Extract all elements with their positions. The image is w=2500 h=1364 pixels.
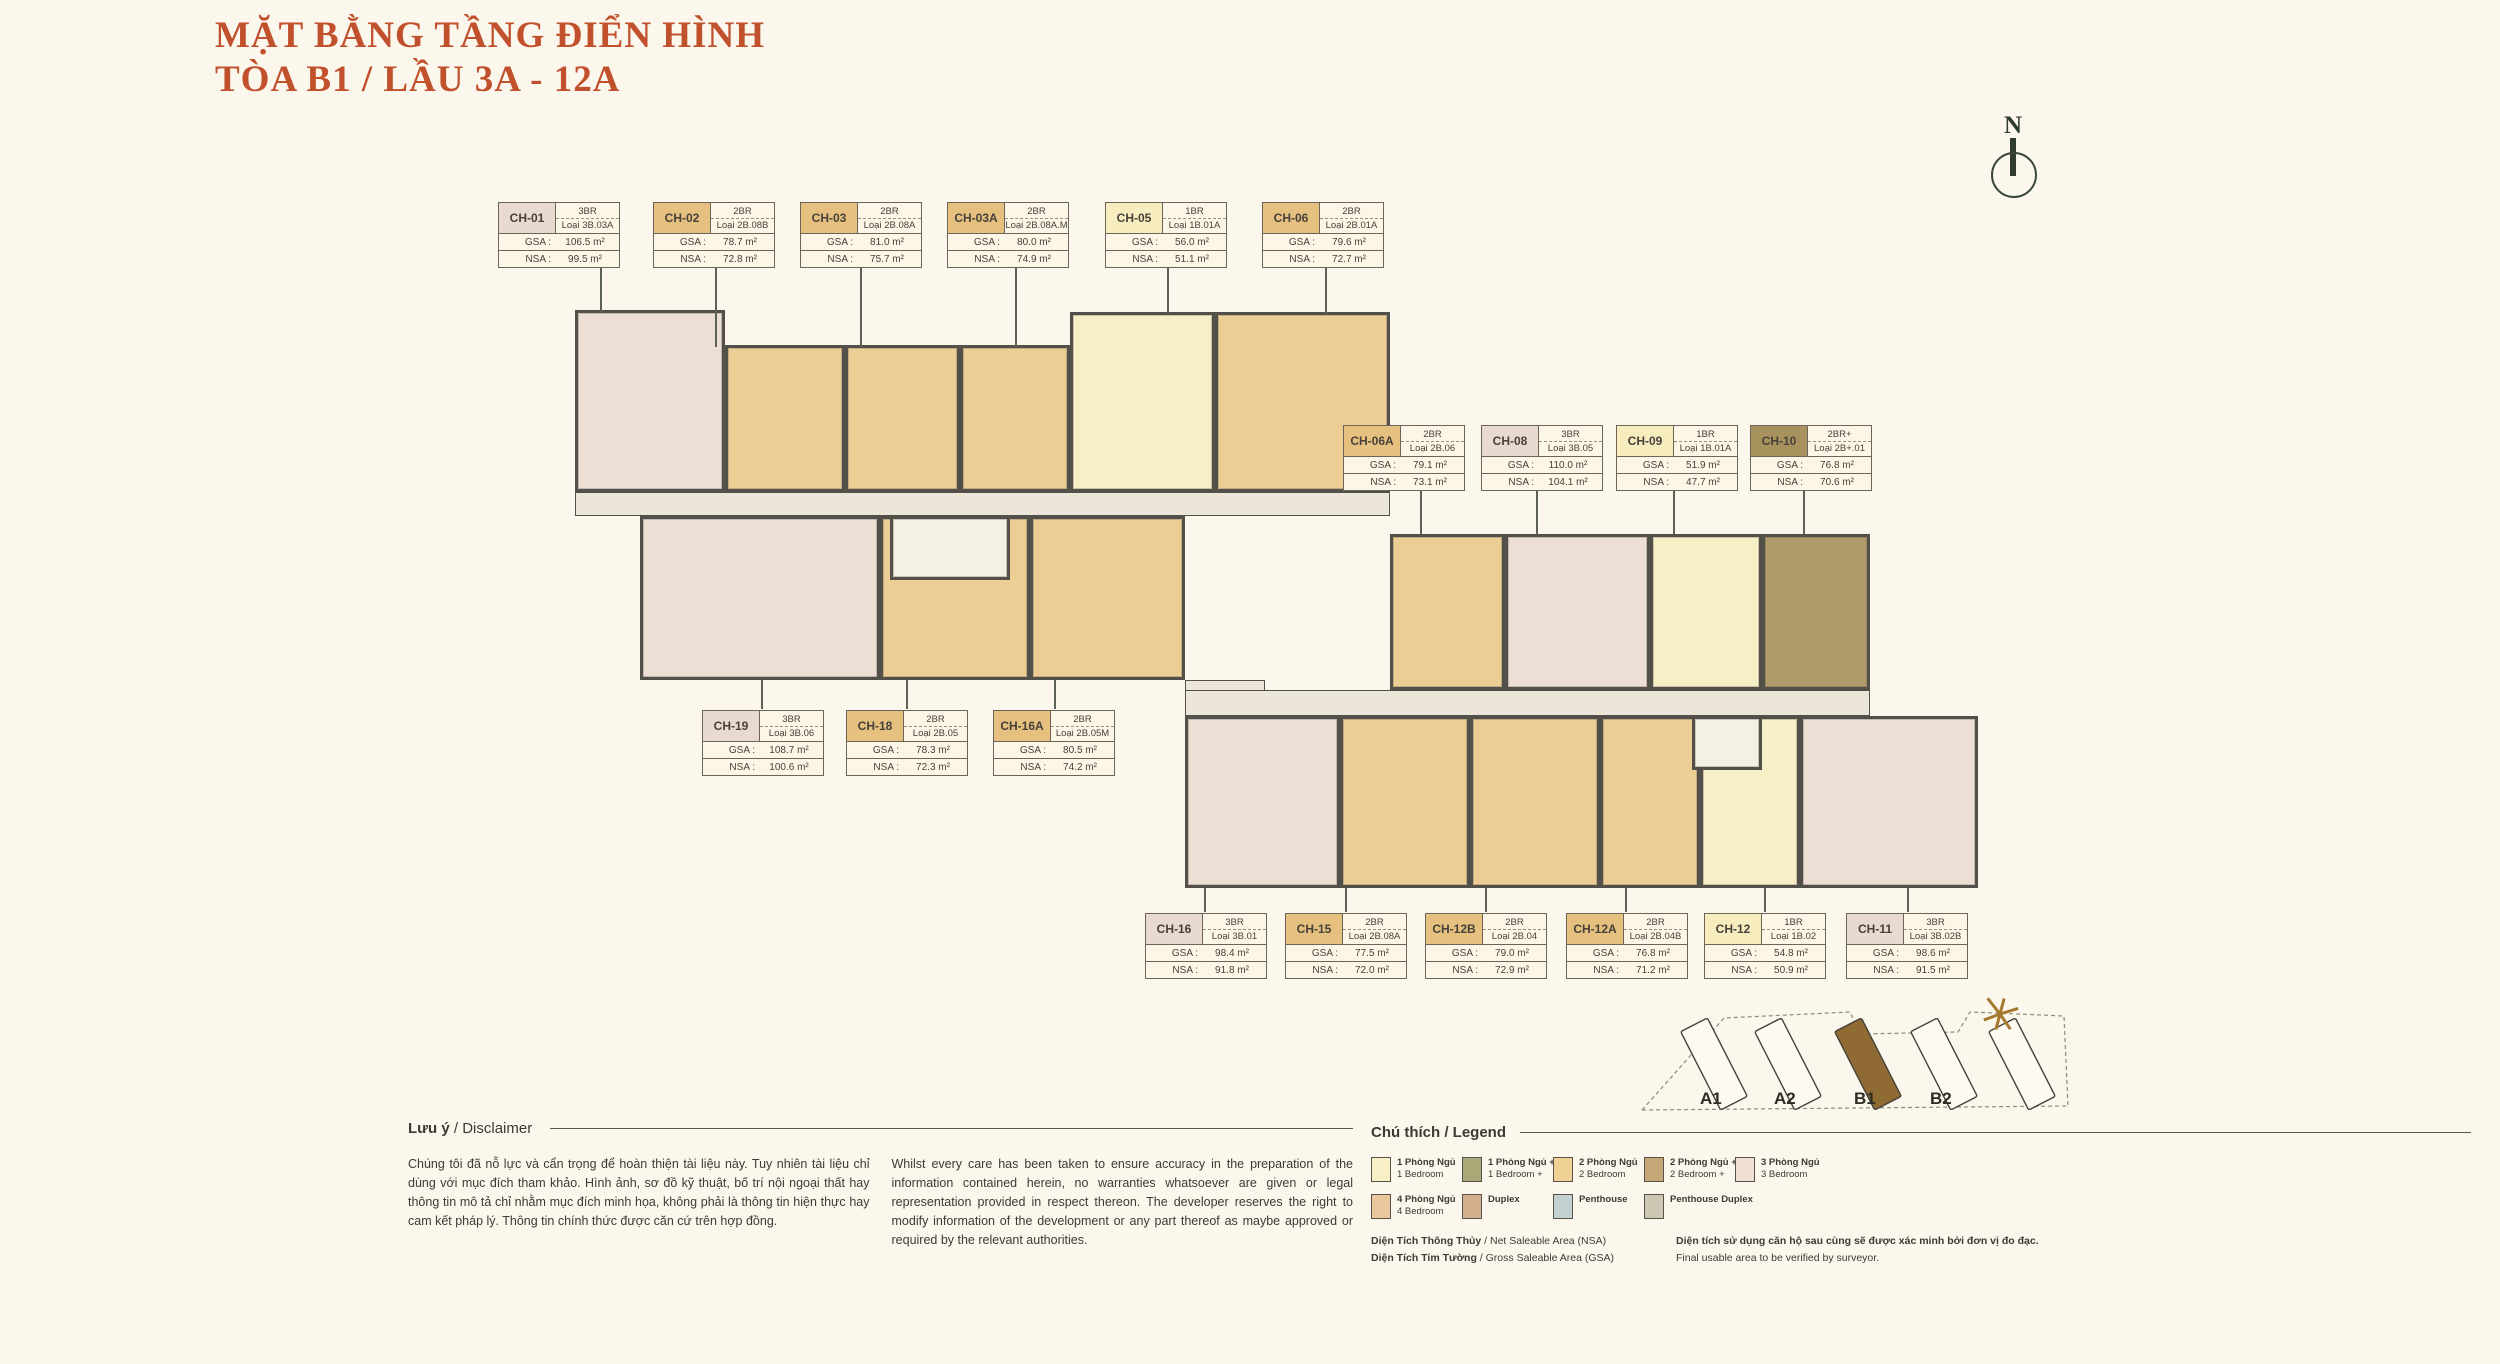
plan-unit-CH-02 bbox=[725, 345, 845, 492]
leader-line bbox=[1907, 888, 1909, 912]
unit-gsa-row: GSA :106.5 m² bbox=[499, 233, 619, 250]
unit-gsa-value: 80.0 m² bbox=[1000, 237, 1068, 248]
unit-gsa-row: GSA :77.5 m² bbox=[1286, 944, 1406, 961]
unit-gsa-row: GSA :78.3 m² bbox=[847, 741, 967, 758]
legend-label-en: 3 Bedroom bbox=[1761, 1169, 1820, 1181]
unit-bedroom-count: 2BR bbox=[711, 205, 774, 218]
unit-gsa-row: GSA :51.9 m² bbox=[1617, 456, 1737, 473]
unit-layout-code: Loại 2B.01A bbox=[1320, 218, 1383, 232]
unit-nsa-label: NSA : bbox=[948, 254, 1000, 265]
unit-gsa-row: GSA :98.4 m² bbox=[1146, 944, 1266, 961]
unit-nsa-value: 70.6 m² bbox=[1803, 477, 1871, 488]
divider-line bbox=[1520, 1132, 2471, 1134]
unit-type-cell: 2BRLoại 2B.05M bbox=[1051, 711, 1114, 741]
unit-layout-code: Loại 3B.05 bbox=[1539, 441, 1602, 455]
unit-nsa-value: 74.9 m² bbox=[1000, 254, 1068, 265]
leader-line bbox=[1485, 888, 1487, 912]
legend-item: 1 Phòng Ngủ +1 Bedroom + bbox=[1462, 1157, 1553, 1182]
plan-unit-CH-12B bbox=[1470, 716, 1600, 888]
site-minimap: A1A2B1B2 bbox=[1628, 992, 2098, 1127]
unit-nsa-label: NSA : bbox=[1705, 965, 1757, 976]
unit-nsa-label: NSA : bbox=[994, 762, 1046, 773]
unit-layout-code: Loại 2B.08B bbox=[711, 218, 774, 232]
unit-bedroom-count: 2BR bbox=[1320, 205, 1383, 218]
unit-nsa-label: NSA : bbox=[1106, 254, 1158, 265]
unit-gsa-value: 51.9 m² bbox=[1669, 460, 1737, 471]
unit-table-CH-06A: CH-06A2BRLoại 2B.06GSA :79.1 m²NSA :73.1… bbox=[1343, 425, 1465, 491]
unit-bedroom-count: 2BR bbox=[1401, 428, 1464, 441]
unit-gsa-label: GSA : bbox=[1705, 948, 1757, 959]
unit-id: CH-11 bbox=[1847, 914, 1904, 944]
minimap-label-A2: A2 bbox=[1774, 1089, 1796, 1108]
minimap-label-B2: B2 bbox=[1930, 1089, 1952, 1108]
unit-table-CH-12B: CH-12B2BRLoại 2B.04GSA :79.0 m²NSA :72.9… bbox=[1425, 913, 1547, 979]
unit-gsa-value: 54.8 m² bbox=[1757, 948, 1825, 959]
unit-gsa-value: 98.4 m² bbox=[1198, 948, 1266, 959]
legend-label-vn: 4 Phòng Ngủ bbox=[1397, 1194, 1456, 1206]
legend-item: Penthouse Duplex bbox=[1644, 1194, 1784, 1219]
legend-swatch bbox=[1371, 1194, 1391, 1219]
unit-type-cell: 1BRLoại 1B.01A bbox=[1674, 426, 1737, 456]
legend-heading-text: Chú thích / Legend bbox=[1371, 1124, 1506, 1141]
disclaimer-section: Lưu ý / Disclaimer Chúng tôi đã nỗ lực v… bbox=[408, 1120, 1353, 1250]
unit-table-CH-09: CH-091BRLoại 1B.01AGSA :51.9 m²NSA :47.7… bbox=[1616, 425, 1738, 491]
unit-gsa-value: 56.0 m² bbox=[1158, 237, 1226, 248]
unit-table-header: CH-051BRLoại 1B.01A bbox=[1106, 203, 1226, 233]
unit-table-CH-10: CH-102BR+Loại 2B+.01GSA :76.8 m²NSA :70.… bbox=[1750, 425, 1872, 491]
unit-nsa-value: 74.2 m² bbox=[1046, 762, 1114, 773]
unit-gsa-label: GSA : bbox=[703, 745, 755, 756]
plan-unit-CH-12A bbox=[1600, 716, 1700, 888]
unit-table-CH-01: CH-013BRLoại 3B.03AGSA :106.5 m²NSA :99.… bbox=[498, 202, 620, 268]
unit-type-cell: 2BRLoại 2B.08A bbox=[858, 203, 921, 233]
unit-gsa-label: GSA : bbox=[994, 745, 1046, 756]
unit-gsa-value: 81.0 m² bbox=[853, 237, 921, 248]
unit-gsa-row: GSA :76.8 m² bbox=[1567, 944, 1687, 961]
unit-nsa-value: 72.7 m² bbox=[1315, 254, 1383, 265]
unit-table-header: CH-03A2BRLoại 2B.08A.M bbox=[948, 203, 1068, 233]
unit-table-CH-11: CH-113BRLoại 3B.02BGSA :98.6 m²NSA :91.5… bbox=[1846, 913, 1968, 979]
minimap-label-A1: A1 bbox=[1700, 1089, 1722, 1108]
unit-type-cell: 3BRLoại 3B.05 bbox=[1539, 426, 1602, 456]
unit-nsa-row: NSA :71.2 m² bbox=[1567, 961, 1687, 978]
legend-label-en: 1 Bedroom bbox=[1397, 1169, 1456, 1181]
unit-gsa-label: GSA : bbox=[1106, 237, 1158, 248]
unit-gsa-row: GSA :78.7 m² bbox=[654, 233, 774, 250]
disclaimer-heading-vn: Lưu ý bbox=[408, 1120, 450, 1137]
unit-gsa-label: GSA : bbox=[654, 237, 706, 248]
unit-table-CH-08: CH-083BRLoại 3B.05GSA :110.0 m²NSA :104.… bbox=[1481, 425, 1603, 491]
legend-item: Duplex bbox=[1462, 1194, 1553, 1219]
unit-nsa-row: NSA :70.6 m² bbox=[1751, 473, 1871, 490]
legend-swatch bbox=[1553, 1194, 1573, 1219]
plan-core bbox=[890, 516, 1010, 580]
gsa-term-en: / Gross Saleable Area (GSA) bbox=[1477, 1252, 1614, 1264]
unit-layout-code: Loại 2B.05 bbox=[904, 726, 967, 740]
legend-labels: Penthouse bbox=[1579, 1194, 1628, 1219]
unit-nsa-value: 50.9 m² bbox=[1757, 965, 1825, 976]
building-outline bbox=[1989, 1018, 2056, 1110]
unit-gsa-label: GSA : bbox=[1847, 948, 1899, 959]
unit-nsa-row: NSA :72.3 m² bbox=[847, 758, 967, 775]
unit-table-header: CH-083BRLoại 3B.05 bbox=[1482, 426, 1602, 456]
legend-item: 4 Phòng Ngủ4 Bedroom bbox=[1371, 1194, 1462, 1219]
unit-type-cell: 2BR+Loại 2B+.01 bbox=[1808, 426, 1871, 456]
unit-id: CH-08 bbox=[1482, 426, 1539, 456]
unit-gsa-row: GSA :79.1 m² bbox=[1344, 456, 1464, 473]
legend-labels: 1 Phòng Ngủ1 Bedroom bbox=[1397, 1157, 1456, 1182]
legend-swatch bbox=[1644, 1194, 1664, 1219]
unit-table-CH-16A: CH-16A2BRLoại 2B.05MGSA :80.5 m²NSA :74.… bbox=[993, 710, 1115, 776]
leader-line bbox=[1345, 888, 1347, 912]
survey-note-en: Final usable area to be verified by surv… bbox=[1676, 1250, 2039, 1267]
unit-bedroom-count: 3BR bbox=[760, 713, 823, 726]
unit-id: CH-12B bbox=[1426, 914, 1483, 944]
unit-gsa-value: 108.7 m² bbox=[755, 745, 823, 756]
unit-id: CH-18 bbox=[847, 711, 904, 741]
legend-labels: Duplex bbox=[1488, 1194, 1520, 1219]
unit-table-header: CH-193BRLoại 3B.06 bbox=[703, 711, 823, 741]
minimap-label-B1: B1 bbox=[1854, 1089, 1876, 1108]
leader-line bbox=[1625, 888, 1627, 912]
leader-line bbox=[1420, 489, 1422, 534]
unit-gsa-row: GSA :98.6 m² bbox=[1847, 944, 1967, 961]
plan-unit-CH-15 bbox=[1340, 716, 1470, 888]
unit-nsa-value: 91.5 m² bbox=[1899, 965, 1967, 976]
unit-table-header: CH-062BRLoại 2B.01A bbox=[1263, 203, 1383, 233]
plan-unit-CH-16A bbox=[1030, 516, 1185, 680]
unit-type-cell: 3BRLoại 3B.03A bbox=[556, 203, 619, 233]
unit-nsa-row: NSA :91.5 m² bbox=[1847, 961, 1967, 978]
unit-table-CH-03A: CH-03A2BRLoại 2B.08A.MGSA :80.0 m²NSA :7… bbox=[947, 202, 1069, 268]
unit-layout-code: Loại 1B.02 bbox=[1762, 929, 1825, 943]
unit-table-CH-16: CH-163BRLoại 3B.01GSA :98.4 m²NSA :91.8 … bbox=[1145, 913, 1267, 979]
legend-label-vn: Penthouse bbox=[1579, 1194, 1628, 1206]
unit-nsa-label: NSA : bbox=[801, 254, 853, 265]
unit-layout-code: Loại 2B.08A bbox=[1343, 929, 1406, 943]
divider-line bbox=[550, 1128, 1353, 1130]
unit-gsa-label: GSA : bbox=[1482, 460, 1534, 471]
leader-line bbox=[1536, 489, 1538, 534]
unit-table-CH-02: CH-022BRLoại 2B.08BGSA :78.7 m²NSA :72.8… bbox=[653, 202, 775, 268]
leader-line bbox=[1167, 266, 1169, 314]
unit-id: CH-09 bbox=[1617, 426, 1674, 456]
unit-nsa-row: NSA :51.1 m² bbox=[1106, 250, 1226, 267]
unit-table-CH-06: CH-062BRLoại 2B.01AGSA :79.6 m²NSA :72.7… bbox=[1262, 202, 1384, 268]
legend-items: 1 Phòng Ngủ1 Bedroom1 Phòng Ngủ +1 Bedro… bbox=[1371, 1157, 2471, 1219]
unit-id: CH-16 bbox=[1146, 914, 1203, 944]
unit-layout-code: Loại 2B.08A bbox=[858, 218, 921, 232]
page-title-line2: TÒA B1 / LẦU 3A - 12A bbox=[215, 58, 765, 102]
unit-gsa-row: GSA :110.0 m² bbox=[1482, 456, 1602, 473]
legend-labels: Penthouse Duplex bbox=[1670, 1194, 1753, 1219]
unit-layout-code: Loại 3B.02B bbox=[1904, 929, 1967, 943]
leader-line bbox=[860, 266, 862, 347]
unit-nsa-row: NSA :99.5 m² bbox=[499, 250, 619, 267]
legend-label-vn: 3 Phòng Ngủ bbox=[1761, 1157, 1820, 1169]
unit-nsa-label: NSA : bbox=[1426, 965, 1478, 976]
unit-layout-code: Loại 3B.03A bbox=[556, 218, 619, 232]
legend-swatch bbox=[1371, 1157, 1391, 1182]
plan-unit-CH-01 bbox=[575, 310, 725, 492]
plan-unit-CH-11 bbox=[1800, 716, 1978, 888]
legend-label-vn: 2 Phòng Ngủ bbox=[1579, 1157, 1638, 1169]
unit-id: CH-19 bbox=[703, 711, 760, 741]
unit-gsa-value: 79.0 m² bbox=[1478, 948, 1546, 959]
unit-nsa-row: NSA :74.9 m² bbox=[948, 250, 1068, 267]
unit-nsa-row: NSA :72.7 m² bbox=[1263, 250, 1383, 267]
unit-nsa-label: NSA : bbox=[1263, 254, 1315, 265]
north-label: N bbox=[1985, 112, 2041, 140]
unit-table-CH-19: CH-193BRLoại 3B.06GSA :108.7 m²NSA :100.… bbox=[702, 710, 824, 776]
legend-item: 1 Phòng Ngủ1 Bedroom bbox=[1371, 1157, 1462, 1182]
unit-table-header: CH-12A2BRLoại 2B.04B bbox=[1567, 914, 1687, 944]
unit-bedroom-count: 2BR bbox=[1483, 916, 1546, 929]
unit-layout-code: Loại 2B.06 bbox=[1401, 441, 1464, 455]
unit-gsa-value: 110.0 m² bbox=[1534, 460, 1602, 471]
unit-table-header: CH-16A2BRLoại 2B.05M bbox=[994, 711, 1114, 741]
unit-table-header: CH-113BRLoại 3B.02B bbox=[1847, 914, 1967, 944]
unit-gsa-label: GSA : bbox=[847, 745, 899, 756]
unit-gsa-label: GSA : bbox=[1751, 460, 1803, 471]
unit-nsa-value: 47.7 m² bbox=[1669, 477, 1737, 488]
legend-item: 2 Phòng Ngủ +2 Bedroom + bbox=[1644, 1157, 1735, 1182]
north-circle-icon bbox=[1991, 152, 2037, 198]
unit-type-cell: 3BRLoại 3B.02B bbox=[1904, 914, 1967, 944]
legend-labels: 4 Phòng Ngủ4 Bedroom bbox=[1397, 1194, 1456, 1219]
leader-line bbox=[761, 680, 763, 709]
unit-gsa-label: GSA : bbox=[1567, 948, 1619, 959]
unit-bedroom-count: 2BR bbox=[858, 205, 921, 218]
leader-line bbox=[1673, 489, 1675, 534]
legend-swatch bbox=[1735, 1157, 1755, 1182]
unit-nsa-label: NSA : bbox=[1286, 965, 1338, 976]
unit-gsa-label: GSA : bbox=[1263, 237, 1315, 248]
unit-nsa-value: 75.7 m² bbox=[853, 254, 921, 265]
unit-nsa-value: 91.8 m² bbox=[1198, 965, 1266, 976]
unit-type-cell: 3BRLoại 3B.01 bbox=[1203, 914, 1266, 944]
unit-id: CH-05 bbox=[1106, 203, 1163, 233]
unit-nsa-label: NSA : bbox=[703, 762, 755, 773]
north-indicator: N bbox=[1985, 112, 2041, 204]
legend-label-en: 2 Bedroom bbox=[1579, 1169, 1638, 1181]
unit-bedroom-count: 3BR bbox=[1539, 428, 1602, 441]
unit-type-cell: 2BRLoại 2B.05 bbox=[904, 711, 967, 741]
unit-gsa-label: GSA : bbox=[1426, 948, 1478, 959]
legend-labels: 3 Phòng Ngủ3 Bedroom bbox=[1761, 1157, 1820, 1182]
legend-swatch bbox=[1462, 1157, 1482, 1182]
plan-unit-CH-03A bbox=[960, 345, 1070, 492]
legend-row: 1 Phòng Ngủ1 Bedroom1 Phòng Ngủ +1 Bedro… bbox=[1371, 1157, 2471, 1182]
unit-table-CH-18: CH-182BRLoại 2B.05GSA :78.3 m²NSA :72.3 … bbox=[846, 710, 968, 776]
unit-bedroom-count: 3BR bbox=[1904, 916, 1967, 929]
legend-item: 3 Phòng Ngủ3 Bedroom bbox=[1735, 1157, 1826, 1182]
unit-table-CH-12A: CH-12A2BRLoại 2B.04BGSA :76.8 m²NSA :71.… bbox=[1566, 913, 1688, 979]
unit-type-cell: 2BRLoại 2B.04B bbox=[1624, 914, 1687, 944]
legend-item: 2 Phòng Ngủ2 Bedroom bbox=[1553, 1157, 1644, 1182]
unit-nsa-value: 72.8 m² bbox=[706, 254, 774, 265]
plan-unit-CH-05 bbox=[1070, 312, 1215, 492]
legend-labels: 1 Phòng Ngủ +1 Bedroom + bbox=[1488, 1157, 1555, 1182]
unit-nsa-row: NSA :100.6 m² bbox=[703, 758, 823, 775]
disclaimer-text-vn: Chúng tôi đã nỗ lực và cẩn trọng để hoàn… bbox=[408, 1155, 870, 1250]
unit-type-cell: 2BRLoại 2B.08B bbox=[711, 203, 774, 233]
unit-nsa-row: NSA :72.0 m² bbox=[1286, 961, 1406, 978]
unit-table-CH-15: CH-152BRLoại 2B.08AGSA :77.5 m²NSA :72.0… bbox=[1285, 913, 1407, 979]
unit-table-CH-12: CH-121BRLoại 1B.02GSA :54.8 m²NSA :50.9 … bbox=[1704, 913, 1826, 979]
unit-id: CH-01 bbox=[499, 203, 556, 233]
unit-gsa-row: GSA :54.8 m² bbox=[1705, 944, 1825, 961]
gsa-term-vn: Diện Tích Tim Tường bbox=[1371, 1252, 1477, 1264]
plan-unit-CH-10 bbox=[1762, 534, 1870, 690]
unit-gsa-value: 78.3 m² bbox=[899, 745, 967, 756]
legend-label-en: 4 Bedroom bbox=[1397, 1206, 1456, 1218]
unit-gsa-value: 76.8 m² bbox=[1619, 948, 1687, 959]
legend-swatch bbox=[1553, 1157, 1573, 1182]
legend-section: Chú thích / Legend 1 Phòng Ngủ1 Bedroom1… bbox=[1371, 1124, 2471, 1267]
plan-unit-CH-03 bbox=[845, 345, 960, 492]
unit-nsa-label: NSA : bbox=[499, 254, 551, 265]
unit-type-cell: 1BRLoại 1B.01A bbox=[1163, 203, 1226, 233]
plan-corridor bbox=[575, 492, 1390, 516]
legend-label-vn: 1 Phòng Ngủ + bbox=[1488, 1157, 1555, 1169]
leader-line bbox=[600, 266, 602, 312]
unit-nsa-label: NSA : bbox=[1482, 477, 1534, 488]
plan-unit-CH-08 bbox=[1505, 534, 1650, 690]
unit-table-header: CH-121BRLoại 1B.02 bbox=[1705, 914, 1825, 944]
unit-gsa-value: 98.6 m² bbox=[1899, 948, 1967, 959]
legend-label-vn: 1 Phòng Ngủ bbox=[1397, 1157, 1456, 1169]
unit-gsa-row: GSA :108.7 m² bbox=[703, 741, 823, 758]
unit-table-header: CH-152BRLoại 2B.08A bbox=[1286, 914, 1406, 944]
unit-gsa-label: GSA : bbox=[1344, 460, 1396, 471]
unit-table-CH-03: CH-032BRLoại 2B.08AGSA :81.0 m²NSA :75.7… bbox=[800, 202, 922, 268]
unit-bedroom-count: 2BR+ bbox=[1808, 428, 1871, 441]
unit-table-header: CH-163BRLoại 3B.01 bbox=[1146, 914, 1266, 944]
unit-id: CH-12A bbox=[1567, 914, 1624, 944]
unit-layout-code: Loại 1B.01A bbox=[1674, 441, 1737, 455]
unit-gsa-row: GSA :76.8 m² bbox=[1751, 456, 1871, 473]
disclaimer-text-en: Whilst every care has been taken to ensu… bbox=[892, 1155, 1354, 1250]
unit-id: CH-02 bbox=[654, 203, 711, 233]
unit-gsa-row: GSA :80.5 m² bbox=[994, 741, 1114, 758]
unit-nsa-value: 72.0 m² bbox=[1338, 965, 1406, 976]
unit-nsa-value: 71.2 m² bbox=[1619, 965, 1687, 976]
unit-bedroom-count: 1BR bbox=[1762, 916, 1825, 929]
unit-id: CH-03 bbox=[801, 203, 858, 233]
unit-type-cell: 3BRLoại 3B.06 bbox=[760, 711, 823, 741]
nsa-term-vn: Diện Tích Thông Thủy bbox=[1371, 1235, 1481, 1247]
unit-bedroom-count: 2BR bbox=[1051, 713, 1114, 726]
unit-id: CH-12 bbox=[1705, 914, 1762, 944]
unit-id: CH-06A bbox=[1344, 426, 1401, 456]
legend-label-vn: Penthouse Duplex bbox=[1670, 1194, 1753, 1206]
unit-nsa-row: NSA :91.8 m² bbox=[1146, 961, 1266, 978]
floor-plan-page: MẶT BẰNG TẦNG ĐIỂN HÌNH TÒA B1 / LẦU 3A … bbox=[0, 0, 2500, 1364]
legend-labels: 2 Phòng Ngủ2 Bedroom bbox=[1579, 1157, 1638, 1182]
unit-table-CH-05: CH-051BRLoại 1B.01AGSA :56.0 m²NSA :51.1… bbox=[1105, 202, 1227, 268]
unit-gsa-label: GSA : bbox=[1286, 948, 1338, 959]
legend-footer: Diện Tích Thông Thủy / Net Saleable Area… bbox=[1371, 1233, 2471, 1267]
legend-heading: Chú thích / Legend bbox=[1371, 1124, 2471, 1141]
plan-unit-CH-16 bbox=[1185, 716, 1340, 888]
unit-nsa-value: 100.6 m² bbox=[755, 762, 823, 773]
survey-note-vn: Diện tích sử dụng căn hộ sau cùng sẽ đượ… bbox=[1676, 1233, 2039, 1250]
nsa-term-en: / Net Saleable Area (NSA) bbox=[1481, 1235, 1606, 1247]
plan-unit-CH-06A bbox=[1390, 534, 1505, 690]
unit-layout-code: Loại 3B.01 bbox=[1203, 929, 1266, 943]
unit-gsa-value: 76.8 m² bbox=[1803, 460, 1871, 471]
unit-layout-code: Loại 3B.06 bbox=[760, 726, 823, 740]
leader-line bbox=[1764, 888, 1766, 912]
unit-type-cell: 1BRLoại 1B.02 bbox=[1762, 914, 1825, 944]
unit-id: CH-10 bbox=[1751, 426, 1808, 456]
unit-type-cell: 2BRLoại 2B.08A.M bbox=[1005, 203, 1068, 233]
unit-nsa-row: NSA :47.7 m² bbox=[1617, 473, 1737, 490]
unit-gsa-label: GSA : bbox=[948, 237, 1000, 248]
unit-bedroom-count: 2BR bbox=[904, 713, 967, 726]
legend-swatch bbox=[1462, 1194, 1482, 1219]
unit-nsa-row: NSA :74.2 m² bbox=[994, 758, 1114, 775]
unit-nsa-row: NSA :75.7 m² bbox=[801, 250, 921, 267]
unit-table-header: CH-022BRLoại 2B.08B bbox=[654, 203, 774, 233]
unit-table-header: CH-102BR+Loại 2B+.01 bbox=[1751, 426, 1871, 456]
page-title: MẶT BẰNG TẦNG ĐIỂN HÌNH TÒA B1 / LẦU 3A … bbox=[215, 14, 765, 101]
unit-layout-code: Loại 1B.01A bbox=[1163, 218, 1226, 232]
legend-labels: 2 Phòng Ngủ +2 Bedroom + bbox=[1670, 1157, 1737, 1182]
unit-gsa-row: GSA :81.0 m² bbox=[801, 233, 921, 250]
unit-nsa-label: NSA : bbox=[847, 762, 899, 773]
plan-unit-CH-09 bbox=[1650, 534, 1762, 690]
unit-layout-code: Loại 2B.04 bbox=[1483, 929, 1546, 943]
unit-gsa-row: GSA :79.0 m² bbox=[1426, 944, 1546, 961]
unit-gsa-value: 78.7 m² bbox=[706, 237, 774, 248]
disclaimer-heading: Lưu ý / Disclaimer bbox=[408, 1120, 1353, 1137]
plan-corridor bbox=[1185, 690, 1870, 716]
unit-gsa-value: 80.5 m² bbox=[1046, 745, 1114, 756]
disclaimer-heading-en: / Disclaimer bbox=[450, 1120, 533, 1137]
unit-nsa-label: NSA : bbox=[654, 254, 706, 265]
unit-layout-code: Loại 2B.08A.M bbox=[1005, 218, 1068, 232]
unit-gsa-value: 79.6 m² bbox=[1315, 237, 1383, 248]
unit-type-cell: 2BRLoại 2B.01A bbox=[1320, 203, 1383, 233]
unit-nsa-label: NSA : bbox=[1751, 477, 1803, 488]
unit-gsa-label: GSA : bbox=[1617, 460, 1669, 471]
unit-bedroom-count: 3BR bbox=[556, 205, 619, 218]
legend-label-en: 1 Bedroom + bbox=[1488, 1169, 1555, 1181]
unit-gsa-row: GSA :79.6 m² bbox=[1263, 233, 1383, 250]
unit-nsa-value: 51.1 m² bbox=[1158, 254, 1226, 265]
unit-layout-code: Loại 2B.05M bbox=[1051, 726, 1114, 740]
leader-line bbox=[1325, 266, 1327, 314]
unit-gsa-value: 106.5 m² bbox=[551, 237, 619, 248]
unit-table-header: CH-182BRLoại 2B.05 bbox=[847, 711, 967, 741]
leader-line bbox=[715, 266, 717, 347]
unit-bedroom-count: 1BR bbox=[1674, 428, 1737, 441]
leader-line bbox=[1204, 888, 1206, 912]
unit-table-header: CH-032BRLoại 2B.08A bbox=[801, 203, 921, 233]
unit-nsa-label: NSA : bbox=[1567, 965, 1619, 976]
unit-type-cell: 2BRLoại 2B.06 bbox=[1401, 426, 1464, 456]
plan-unit-CH-19 bbox=[640, 516, 880, 680]
leader-line bbox=[1054, 680, 1056, 709]
unit-nsa-label: NSA : bbox=[1146, 965, 1198, 976]
unit-nsa-row: NSA :73.1 m² bbox=[1344, 473, 1464, 490]
legend-label-vn: 2 Phòng Ngủ + bbox=[1670, 1157, 1737, 1169]
unit-gsa-label: GSA : bbox=[801, 237, 853, 248]
unit-table-header: CH-06A2BRLoại 2B.06 bbox=[1344, 426, 1464, 456]
unit-nsa-row: NSA :72.9 m² bbox=[1426, 961, 1546, 978]
